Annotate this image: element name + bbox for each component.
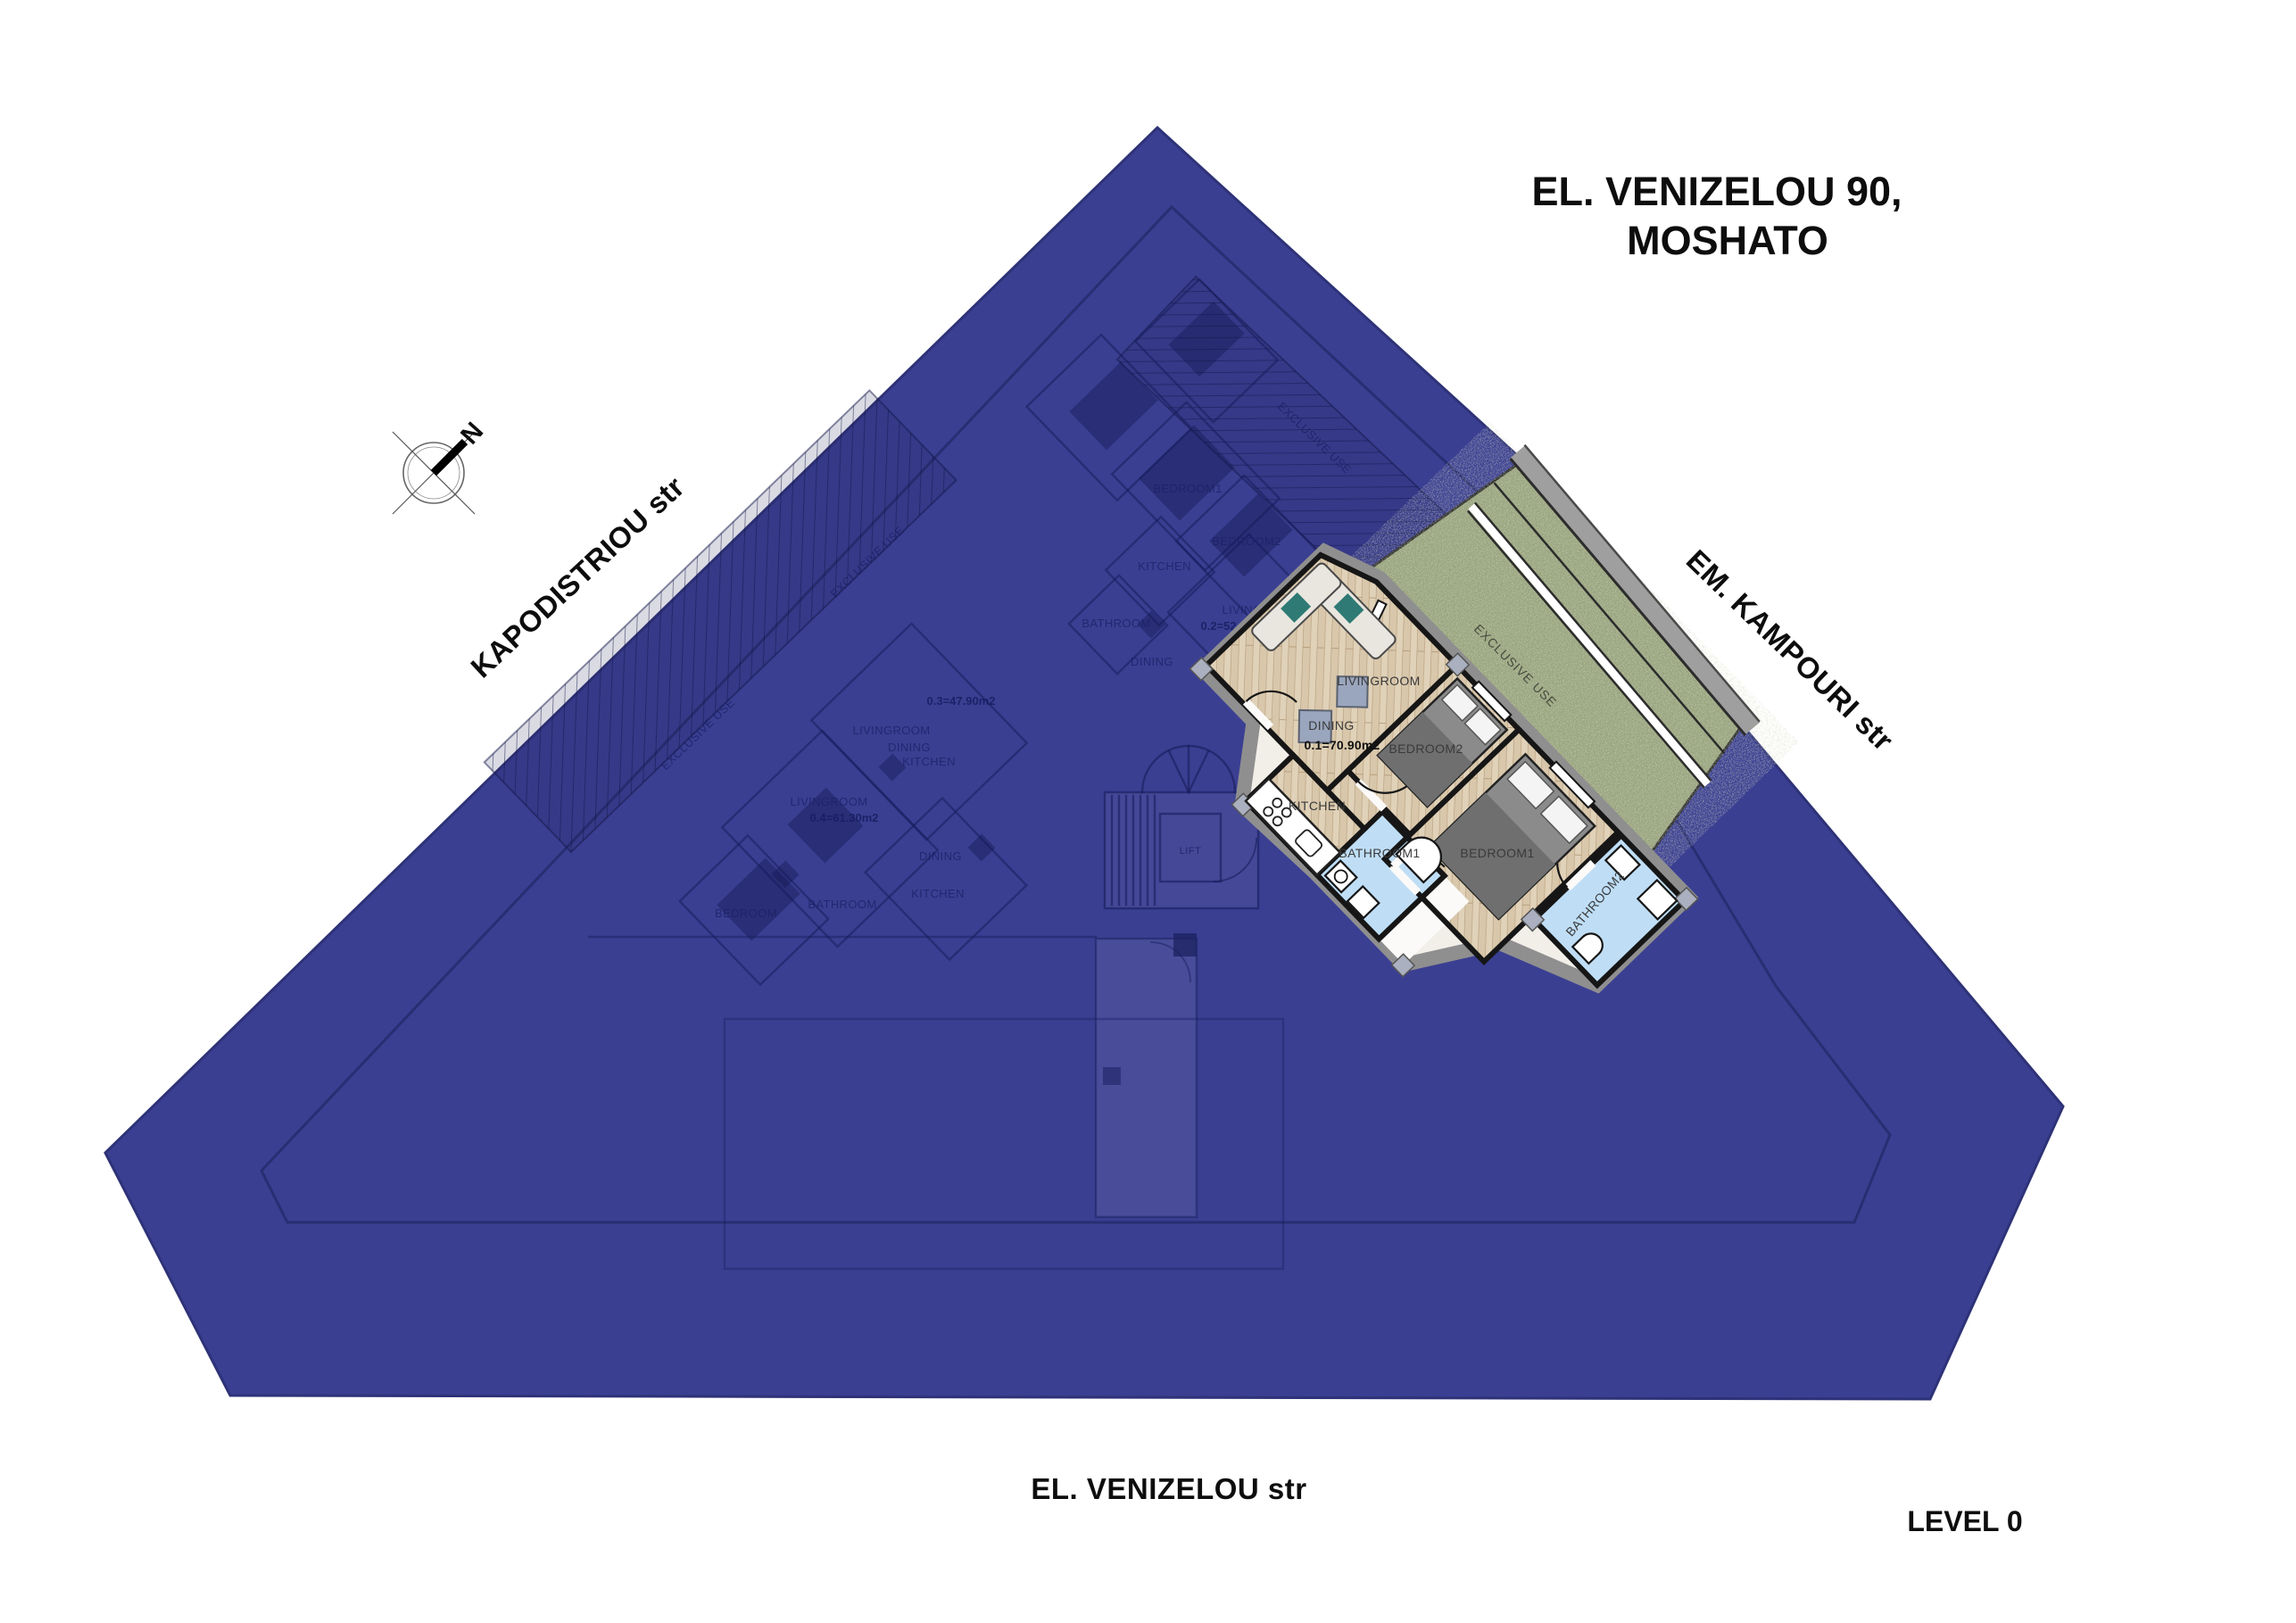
unit-area-label: 0.1=70.90m2: [1304, 738, 1380, 752]
overlay-label: KITCHEN: [1138, 559, 1191, 573]
overlay-label: BEDROOM2: [1212, 534, 1281, 548]
bathroom1-label: BATHROOM1: [1339, 846, 1420, 860]
overlay-label: KITCHEN: [911, 887, 965, 900]
dining-label: DINING: [1308, 718, 1354, 733]
bedroom2-label: BEDROOM2: [1388, 741, 1463, 756]
overlay-label: BEDROOM: [715, 907, 777, 920]
overlay-label: 0.4=61.30m2: [810, 811, 879, 824]
overlay-label: 0.3=47.90m2: [927, 694, 996, 708]
overlay-label: BATHROOM: [1082, 617, 1150, 630]
livingroom-label: LIVINGROOM: [1337, 674, 1420, 688]
site-plan-page: EXCLUSIVE USE EXCLUSIVE USE EXCLUSIVE US…: [0, 0, 2296, 1623]
overlay-label: DINING: [888, 741, 931, 754]
overlay-label: KITCHEN: [902, 755, 956, 768]
page-title-line1: EL. VENIZELOU 90,: [1531, 169, 1902, 214]
bedroom1-label: BEDROOM1: [1460, 846, 1534, 860]
page-title-line2: MOSHATO: [1627, 218, 1828, 263]
street-label-venizelou: EL. VENIZELOU str: [1031, 1472, 1306, 1505]
overlay-label: BEDROOM1: [1153, 482, 1223, 495]
overlay-label: LIVINGROOM: [790, 795, 867, 808]
overlay-label: DINING: [1131, 655, 1173, 668]
overlay-label: BATHROOM: [808, 898, 876, 911]
level-label: LEVEL 0: [1907, 1505, 2022, 1537]
overlay-label: LIVINGROOM: [852, 724, 930, 737]
floor-plan-canvas: EXCLUSIVE USE EXCLUSIVE USE EXCLUSIVE US…: [0, 0, 2296, 1623]
kitchen-label: KITCHEN: [1289, 799, 1346, 813]
overlay-label: DINING: [919, 849, 962, 863]
lift-label: LIFT: [1180, 846, 1202, 857]
